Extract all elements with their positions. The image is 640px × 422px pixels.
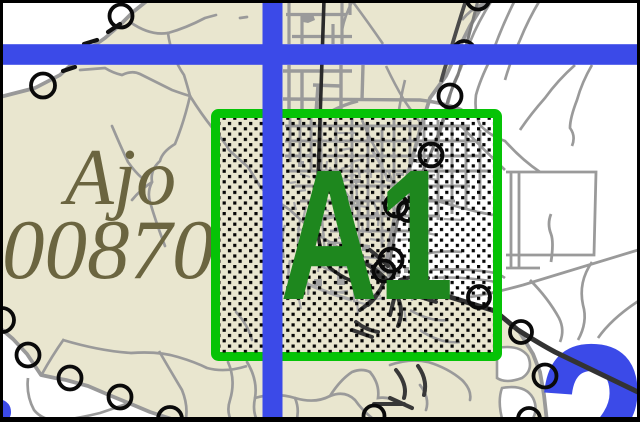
svg-text:2: 2 (536, 293, 640, 422)
svg-text:A1: A1 (280, 131, 454, 339)
svg-text:00870: 00870 (2, 203, 215, 297)
